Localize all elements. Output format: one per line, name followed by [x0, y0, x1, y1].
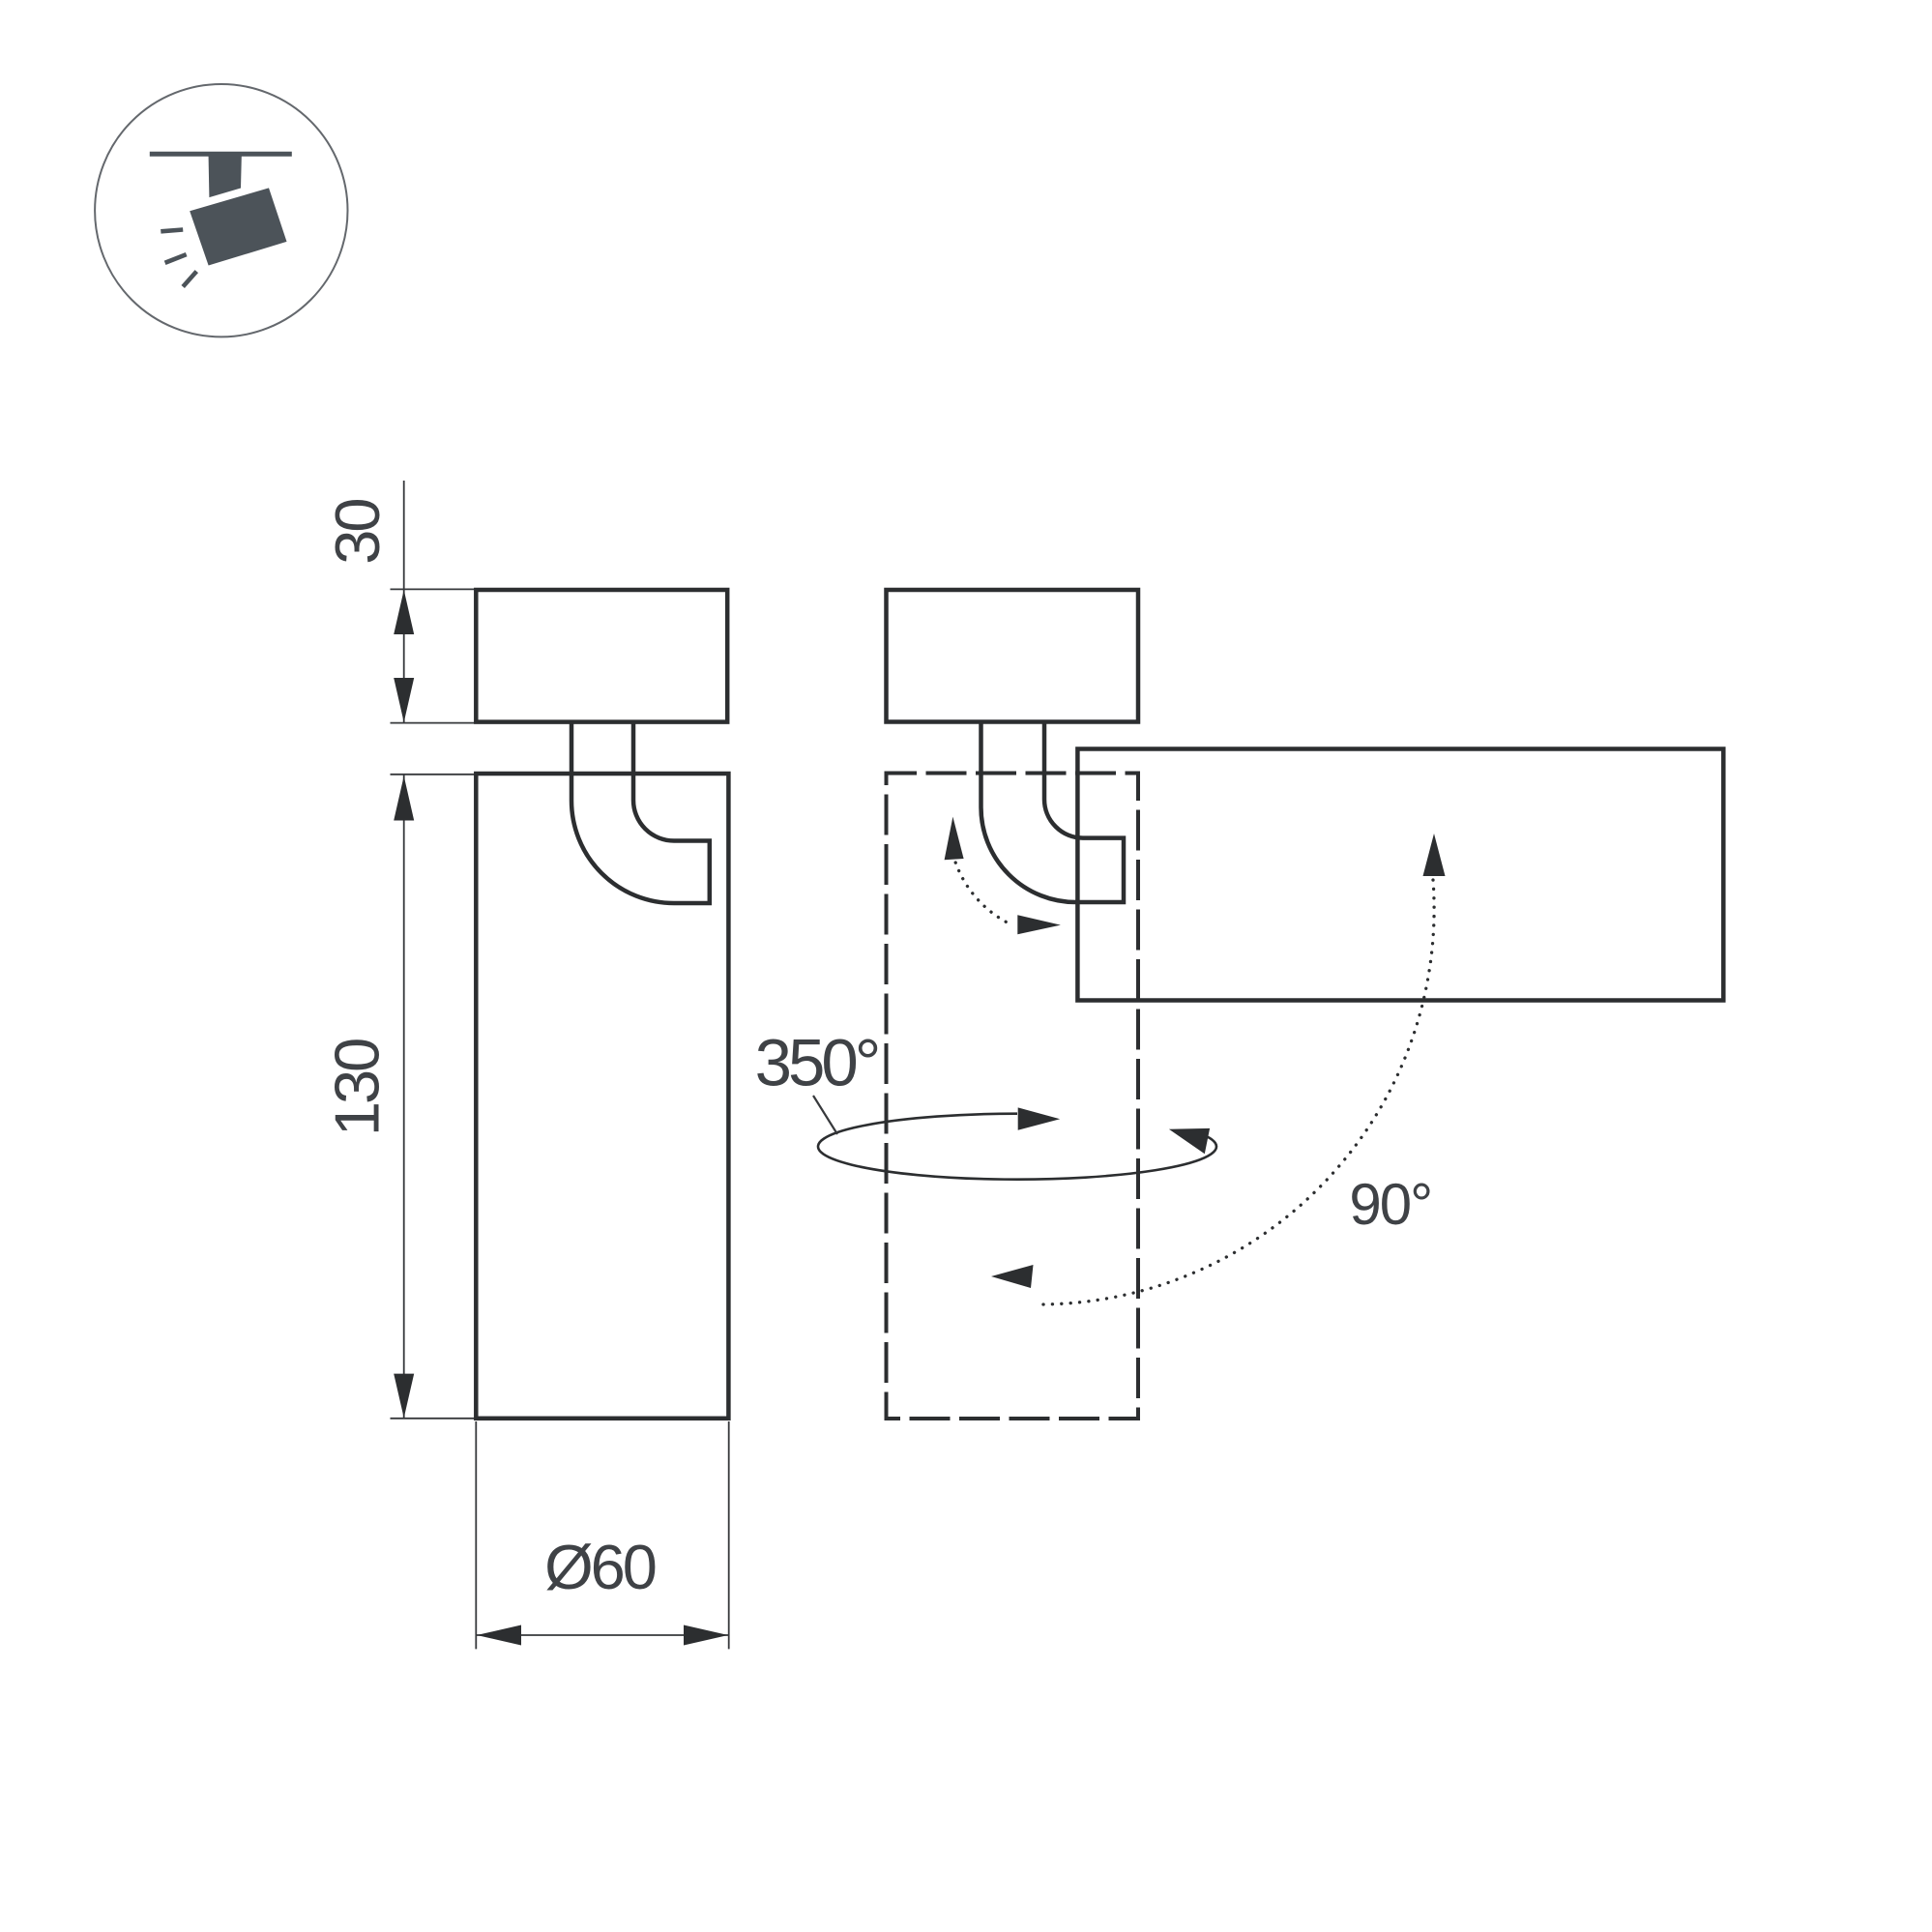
svg-text:30: 30	[322, 500, 393, 565]
svg-text:130: 130	[322, 1039, 393, 1136]
svg-text:350°: 350°	[755, 1026, 878, 1100]
svg-text:90°: 90°	[1349, 1172, 1431, 1237]
svg-text:Ø60: Ø60	[544, 1532, 656, 1602]
